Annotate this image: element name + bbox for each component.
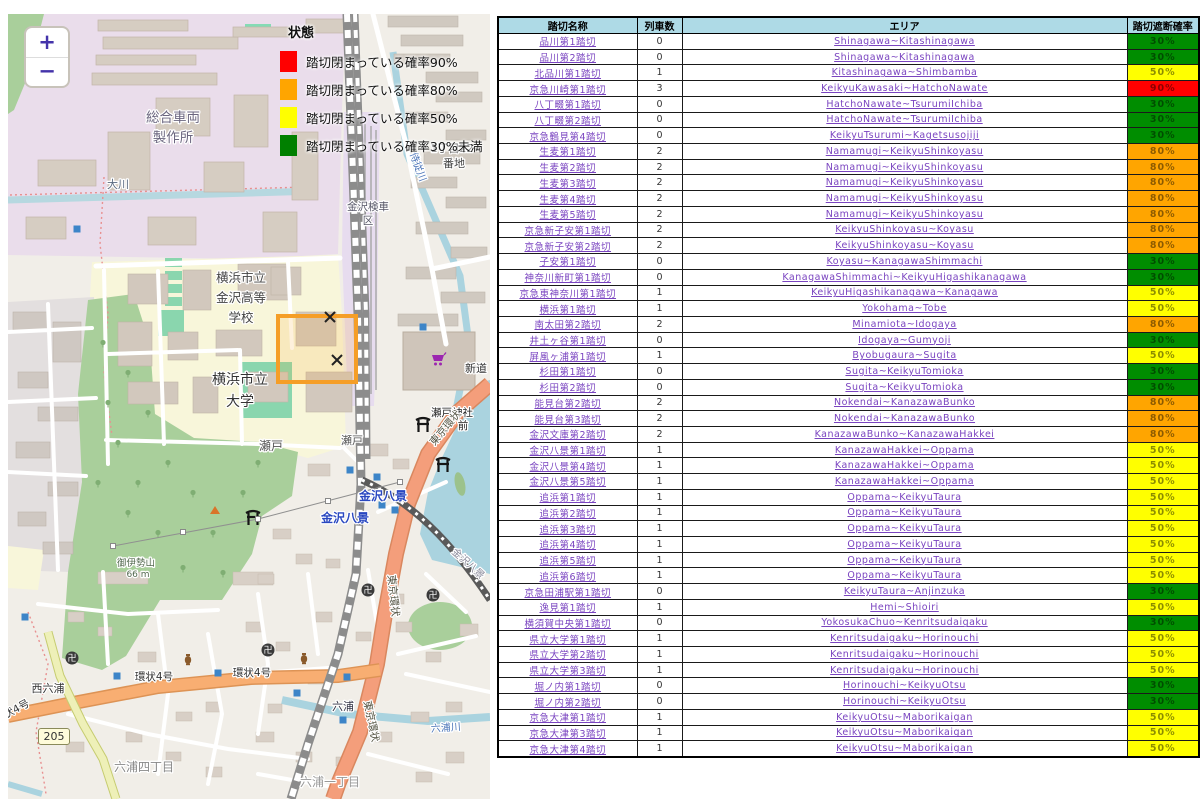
train-count-cell: 2: [637, 206, 682, 222]
table-row: 京急大津第4踏切1KeikyuOtsu~Maborikaigan50%: [498, 741, 1199, 757]
table-header-row: 踏切名称 列車数 エリア 踏切遮断確率: [498, 17, 1199, 34]
probability-cell: 80%: [1127, 426, 1199, 442]
area-link[interactable]: HatchoNawate~TsurumiIchiba: [826, 99, 982, 110]
node-icon: [256, 517, 261, 522]
probability-cell: 80%: [1127, 316, 1199, 332]
area-link[interactable]: Namamugi~KeikyuShinkoyasu: [826, 146, 984, 157]
table-row: 堀ノ内第2踏切0Horinouchi~KeikyuOtsu30%: [498, 694, 1199, 710]
area-cell: KanazawaHakkei~Oppama: [682, 442, 1127, 458]
table-row: 品川第1踏切0Shinagawa~Kitashinagawa30%: [498, 34, 1199, 50]
map-label: 番地: [443, 157, 465, 170]
area-cell: KanazawaBunko~KanazawaHakkei: [682, 426, 1127, 442]
train-count-cell: 0: [637, 584, 682, 600]
node-icon: [111, 544, 116, 549]
area-link[interactable]: KeikyuOtsu~Maborikaigan: [836, 743, 973, 754]
table-row: 堀ノ内第1踏切0Horinouchi~KeikyuOtsu30%: [498, 678, 1199, 694]
area-link[interactable]: Oppama~KeikyuTaura: [847, 555, 961, 566]
map[interactable]: 卍: [8, 14, 490, 799]
area-link[interactable]: KeikyuKawasaki~HatchoNawate: [821, 83, 988, 94]
zoom-out-button[interactable]: −: [26, 58, 68, 87]
crossing-name-cell: 生麦第1踏切: [498, 144, 637, 160]
train-count-cell: 0: [637, 615, 682, 631]
crossing-name-cell: 県立大学第2踏切: [498, 647, 637, 663]
area-cell: Oppama~KeikyuTaura: [682, 568, 1127, 584]
area-link[interactable]: Namamugi~KeikyuShinkoyasu: [826, 193, 984, 204]
road-ref-badge: 205: [38, 728, 70, 745]
train-count-cell: 1: [637, 285, 682, 301]
table-row: 逸見第1踏切1Hemi~Shioiri50%: [498, 599, 1199, 615]
probability-cell: 30%: [1127, 379, 1199, 395]
crossing-name-cell: 品川第2踏切: [498, 49, 637, 65]
probability-cell: 80%: [1127, 222, 1199, 238]
area-link[interactable]: Kenritsudaigaku~Horinouchi: [830, 649, 979, 660]
crossing-name-link[interactable]: 逸見第1踏切: [539, 603, 596, 614]
map-label: 金沢検車: [347, 200, 389, 213]
probability-cell: 50%: [1127, 285, 1199, 301]
area-cell: Idogaya~Gumyoji: [682, 332, 1127, 348]
probability-cell: 30%: [1127, 364, 1199, 380]
area-cell: KeikyuTsurumi~Kagetsusojiji: [682, 128, 1127, 144]
crossing-name-link[interactable]: 能見台第2踏切: [534, 399, 601, 410]
table-row: 京急新子安第1踏切2KeikyuShinkoyasu~Koyasu80%: [498, 222, 1199, 238]
table-row: 県立大学第3踏切1Kenritsudaigaku~Horinouchi50%: [498, 662, 1199, 678]
node-icon: [398, 480, 403, 485]
crossing-table-panel: 踏切名称 列車数 エリア 踏切遮断確率 品川第1踏切0Shinagawa~Kit…: [497, 16, 1198, 758]
train-count-cell: 0: [637, 379, 682, 395]
table-row: 杉田第1踏切0Sugita~KeikyuTomioka30%: [498, 364, 1199, 380]
train-count-cell: 1: [637, 301, 682, 317]
area-link[interactable]: KeikyuHigashikanagawa~Kanagawa: [811, 287, 998, 298]
crossing-name-cell: 子安第1踏切: [498, 254, 637, 270]
area-link[interactable]: KeikyuTaura~Anjinzuka: [844, 586, 965, 597]
area-link[interactable]: Shinagawa~Kitashinagawa: [834, 36, 975, 47]
crossing-name-cell: 横浜第1踏切: [498, 301, 637, 317]
probability-cell: 30%: [1127, 34, 1199, 50]
train-count-cell: 2: [637, 395, 682, 411]
map-label: 横浜市立: [216, 270, 266, 285]
crossing-name-link[interactable]: 金沢八景第1踏切: [529, 446, 606, 457]
temple-icon: [427, 589, 440, 602]
header-train-count: 列車数: [637, 17, 682, 34]
table-row: 品川第2踏切0Shinagawa~Kitashinagawa30%: [498, 49, 1199, 65]
area-cell: Byobugaura~Sugita: [682, 348, 1127, 364]
map-label: 環状4号: [135, 670, 173, 683]
map-label: 区: [363, 215, 374, 227]
crossing-name-link[interactable]: 追浜第6踏切: [539, 572, 596, 583]
map-label: 六浦一丁目: [300, 775, 360, 789]
crossing-name-cell: 京急新子安第2踏切: [498, 238, 637, 254]
crossing-name-link[interactable]: 南太田第2踏切: [534, 320, 601, 331]
area-link[interactable]: Nokendai~KanazawaBunko: [834, 397, 975, 408]
probability-cell: 50%: [1127, 568, 1199, 584]
area-link[interactable]: Yokohama~Tobe: [862, 303, 947, 314]
crossing-name-link[interactable]: 京急鶴見第4踏切: [529, 132, 606, 143]
train-count-cell: 1: [637, 647, 682, 663]
area-link[interactable]: Hemi~Shioiri: [870, 602, 939, 613]
crossing-name-link[interactable]: 生麦第3踏切: [539, 179, 596, 190]
probability-cell: 50%: [1127, 709, 1199, 725]
area-cell: Minamiota~Idogaya: [682, 316, 1127, 332]
train-count-cell: 2: [637, 144, 682, 160]
bluesq-icon: [22, 614, 29, 621]
train-count-cell: 2: [637, 238, 682, 254]
probability-cell: 30%: [1127, 254, 1199, 270]
map-label: 西六浦: [32, 682, 65, 695]
probability-cell: 80%: [1127, 191, 1199, 207]
area-cell: Oppama~KeikyuTaura: [682, 505, 1127, 521]
train-count-cell: 1: [637, 599, 682, 615]
map-label: 六浦: [332, 700, 354, 713]
area-link[interactable]: Nokendai~KanazawaBunko: [834, 413, 975, 424]
train-count-cell: 2: [637, 175, 682, 191]
probability-cell: 30%: [1127, 96, 1199, 112]
probability-cell: 30%: [1127, 128, 1199, 144]
map-label: 新道: [465, 361, 487, 375]
crossing-name-link[interactable]: 生麦第5踏切: [539, 210, 596, 221]
area-cell: KanazawaHakkei~Oppama: [682, 458, 1127, 474]
crossing-name-cell: 金沢八景第5踏切: [498, 474, 637, 490]
probability-cell: 80%: [1127, 159, 1199, 175]
area-link[interactable]: Sugita~KeikyuTomioka: [845, 366, 963, 377]
train-count-cell: 3: [637, 81, 682, 97]
crossing-name-link[interactable]: 能見台第3踏切: [534, 415, 601, 426]
train-count-cell: 0: [637, 269, 682, 285]
zoom-control: + −: [24, 26, 70, 88]
area-cell: Namamugi~KeikyuShinkoyasu: [682, 206, 1127, 222]
crossing-name-link[interactable]: 品川第2踏切: [539, 53, 596, 64]
crossing-name-link[interactable]: 京急東神奈川第1踏切: [519, 289, 616, 300]
area-link[interactable]: YokosukaChuo~Kenritsudaigaku: [821, 617, 987, 628]
table-row: 金沢八景第4踏切1KanazawaHakkei~Oppama50%: [498, 458, 1199, 474]
table-row: 八丁畷第2踏切0HatchoNawate~TsurumiIchiba30%: [498, 112, 1199, 128]
train-count-cell: 1: [637, 725, 682, 741]
table-row: 生麦第5踏切2Namamugi~KeikyuShinkoyasu80%: [498, 206, 1199, 222]
crossing-name-link[interactable]: 井土ヶ谷第1踏切: [529, 336, 606, 347]
crossing-table-body: 品川第1踏切0Shinagawa~Kitashinagawa30%品川第2踏切0…: [498, 34, 1199, 758]
zoom-in-button[interactable]: +: [26, 28, 68, 57]
probability-cell: 50%: [1127, 552, 1199, 568]
map-label: 1丁目22: [431, 142, 474, 155]
crossing-name-link[interactable]: 生麦第4踏切: [539, 195, 596, 206]
area-cell: Horinouchi~KeikyuOtsu: [682, 678, 1127, 694]
table-row: 京急田浦駅第1踏切0KeikyuTaura~Anjinzuka30%: [498, 584, 1199, 600]
crossing-name-link[interactable]: 京急大津第3踏切: [529, 729, 606, 740]
temple-icon: [362, 584, 375, 597]
crossing-name-link[interactable]: 金沢八景第4踏切: [529, 462, 606, 473]
table-row: 追浜第6踏切1Oppama~KeikyuTaura50%: [498, 568, 1199, 584]
area-link[interactable]: Oppama~KeikyuTaura: [847, 539, 961, 550]
area-link[interactable]: KanazawaHakkei~Oppama: [835, 476, 974, 487]
area-link[interactable]: Kenritsudaigaku~Horinouchi: [830, 665, 979, 676]
train-count-cell: 1: [637, 662, 682, 678]
crossing-name-link[interactable]: 杉田第1踏切: [539, 367, 596, 378]
bluesq-icon: [420, 324, 427, 331]
crossing-name-cell: 横須賀中央第1踏切: [498, 615, 637, 631]
table-row: 能見台第2踏切2Nokendai~KanazawaBunko80%: [498, 395, 1199, 411]
node-icon: [326, 499, 331, 504]
crossing-name-cell: 金沢文庫第2踏切: [498, 426, 637, 442]
train-count-cell: 0: [637, 112, 682, 128]
area-cell: Sugita~KeikyuTomioka: [682, 379, 1127, 395]
area-link[interactable]: Shinagawa~Kitashinagawa: [834, 52, 975, 63]
area-link[interactable]: KeikyuOtsu~Maborikaigan: [836, 712, 973, 723]
crossing-name-link[interactable]: 京急大津第1踏切: [529, 713, 606, 724]
train-count-cell: 1: [637, 348, 682, 364]
probability-cell: 50%: [1127, 442, 1199, 458]
area-cell: Kenritsudaigaku~Horinouchi: [682, 662, 1127, 678]
area-cell: Yokohama~Tobe: [682, 301, 1127, 317]
crossing-name-cell: 京急川崎第1踏切: [498, 81, 637, 97]
train-count-cell: 2: [637, 411, 682, 427]
area-cell: Oppama~KeikyuTaura: [682, 521, 1127, 537]
crossing-name-cell: 八丁畷第2踏切: [498, 112, 637, 128]
area-link[interactable]: KeikyuShinkoyasu~Koyasu: [835, 224, 974, 235]
train-count-cell: 1: [637, 741, 682, 757]
train-count-cell: 1: [637, 568, 682, 584]
table-row: 生麦第3踏切2Namamugi~KeikyuShinkoyasu80%: [498, 175, 1199, 191]
bluesq-icon: [374, 474, 381, 481]
crossing-name-link[interactable]: 横須賀中央第1踏切: [524, 619, 611, 630]
temple-icon: [66, 652, 79, 665]
area-cell: Shinagawa~Kitashinagawa: [682, 34, 1127, 50]
area-link[interactable]: Horinouchi~KeikyuOtsu: [843, 680, 966, 691]
area-cell: Sugita~KeikyuTomioka: [682, 364, 1127, 380]
probability-cell: 30%: [1127, 269, 1199, 285]
crossing-name-cell: 追浜第6踏切: [498, 568, 637, 584]
area-cell: HatchoNawate~TsurumiIchiba: [682, 96, 1127, 112]
area-link[interactable]: HatchoNawate~TsurumiIchiba: [826, 114, 982, 125]
map-canvas: 卍: [8, 14, 490, 799]
school-area: [8, 546, 44, 590]
crossing-name-cell: 杉田第1踏切: [498, 364, 637, 380]
crossing-name-cell: 生麦第5踏切: [498, 206, 637, 222]
area-cell: Oppama~KeikyuTaura: [682, 537, 1127, 553]
map-label: 金沢八景: [358, 488, 407, 503]
crossing-name-cell: 金沢八景第1踏切: [498, 442, 637, 458]
map-label: 66 m: [126, 570, 149, 580]
area-link[interactable]: Minamiota~Idogaya: [852, 319, 956, 330]
probability-cell: 50%: [1127, 662, 1199, 678]
table-row: 北品川第1踏切1Kitashinagawa~Shimbamba50%: [498, 65, 1199, 81]
crossing-name-link[interactable]: 横浜第1踏切: [539, 305, 596, 316]
area-cell: Namamugi~KeikyuShinkoyasu: [682, 175, 1127, 191]
train-count-cell: 1: [637, 474, 682, 490]
area-link[interactable]: KanazawaBunko~KanazawaHakkei: [815, 429, 995, 440]
crossing-name-link[interactable]: 神奈川新町第1踏切: [524, 273, 611, 284]
area-link[interactable]: Idogaya~Gumyoji: [858, 335, 951, 346]
crossing-name-link[interactable]: 生麦第1踏切: [539, 147, 596, 158]
area-cell: Oppama~KeikyuTaura: [682, 552, 1127, 568]
table-row: 金沢八景第1踏切1KanazawaHakkei~Oppama50%: [498, 442, 1199, 458]
area-link[interactable]: KeikyuShinkoyasu~Koyasu: [835, 240, 974, 251]
table-row: 京急大津第3踏切1KeikyuOtsu~Maborikaigan50%: [498, 725, 1199, 741]
crossing-name-cell: 八丁畷第1踏切: [498, 96, 637, 112]
bluesq-icon: [294, 690, 301, 697]
bluesq-icon: [114, 673, 121, 680]
crossing-name-link[interactable]: 追浜第4踏切: [539, 540, 596, 551]
crossing-name-link[interactable]: 追浜第2踏切: [539, 509, 596, 520]
crossing-name-link[interactable]: 追浜第1踏切: [539, 493, 596, 504]
bluesq-icon: [347, 467, 354, 474]
map-label: 瀬戸: [341, 433, 363, 447]
area-cell: KeikyuShinkoyasu~Koyasu: [682, 238, 1127, 254]
crossing-name-cell: 京急大津第1踏切: [498, 709, 637, 725]
crossing-name-link[interactable]: 県立大学第3踏切: [529, 666, 606, 677]
crossing-name-link[interactable]: 生麦第2踏切: [539, 163, 596, 174]
crossing-name-cell: 品川第1踏切: [498, 34, 637, 50]
table-row: 八丁畷第1踏切0HatchoNawate~TsurumiIchiba30%: [498, 96, 1199, 112]
table-row: 金沢八景第5踏切1KanazawaHakkei~Oppama50%: [498, 474, 1199, 490]
crossing-name-cell: 追浜第3踏切: [498, 521, 637, 537]
crossing-name-link[interactable]: 八丁畷第1踏切: [534, 100, 601, 111]
probability-cell: 50%: [1127, 505, 1199, 521]
train-count-cell: 0: [637, 128, 682, 144]
area-cell: KeikyuShinkoyasu~Koyasu: [682, 222, 1127, 238]
train-count-cell: 0: [637, 49, 682, 65]
area-cell: KeikyuOtsu~Maborikaigan: [682, 709, 1127, 725]
table-row: 追浜第3踏切1Oppama~KeikyuTaura50%: [498, 521, 1199, 537]
crossing-name-cell: 堀ノ内第2踏切: [498, 694, 637, 710]
crossing-name-cell: 追浜第2踏切: [498, 505, 637, 521]
crossing-name-link[interactable]: 京急大津第4踏切: [529, 745, 606, 756]
probability-cell: 50%: [1127, 458, 1199, 474]
crossing-name-link[interactable]: 京急田浦駅第1踏切: [524, 588, 611, 599]
area-link[interactable]: KanazawaHakkei~Oppama: [835, 460, 974, 471]
area-cell: Nokendai~KanazawaBunko: [682, 411, 1127, 427]
probability-cell: 80%: [1127, 395, 1199, 411]
area-cell: Oppama~KeikyuTaura: [682, 489, 1127, 505]
probability-cell: 80%: [1127, 144, 1199, 160]
table-row: 金沢文庫第2踏切2KanazawaBunko~KanazawaHakkei80%: [498, 426, 1199, 442]
map-label: 六浦四丁目: [114, 760, 174, 774]
probability-cell: 50%: [1127, 647, 1199, 663]
crossing-name-link[interactable]: 北品川第1踏切: [534, 69, 601, 80]
crossing-name-cell: 堀ノ内第1踏切: [498, 678, 637, 694]
probability-cell: 80%: [1127, 238, 1199, 254]
bluesq-icon: [74, 226, 81, 233]
crossing-name-cell: 京急新子安第1踏切: [498, 222, 637, 238]
train-count-cell: 0: [637, 678, 682, 694]
area-cell: KanazawaHakkei~Oppama: [682, 474, 1127, 490]
crossing-name-cell: 県立大学第1踏切: [498, 631, 637, 647]
crossing-name-cell: 京急東神奈川第1踏切: [498, 285, 637, 301]
crossing-name-link[interactable]: 京急新子安第2踏切: [524, 242, 611, 253]
table-row: 屏風ヶ浦第1踏切1Byobugaura~Sugita50%: [498, 348, 1199, 364]
crossing-name-link[interactable]: 品川第1踏切: [539, 37, 596, 48]
crossing-name-cell: 金沢八景第4踏切: [498, 458, 637, 474]
area-cell: KeikyuHigashikanagawa~Kanagawa: [682, 285, 1127, 301]
crossing-name-link[interactable]: 追浜第5踏切: [539, 556, 596, 567]
probability-cell: 30%: [1127, 332, 1199, 348]
area-link[interactable]: Oppama~KeikyuTaura: [847, 570, 961, 581]
header-area: エリア: [682, 17, 1127, 34]
area-link[interactable]: Namamugi~KeikyuShinkoyasu: [826, 177, 984, 188]
crossing-name-link[interactable]: 金沢八景第5踏切: [529, 477, 606, 488]
area-cell: Horinouchi~KeikyuOtsu: [682, 694, 1127, 710]
train-count-cell: 1: [637, 537, 682, 553]
crossing-name-cell: 能見台第3踏切: [498, 411, 637, 427]
crossing-name-link[interactable]: 子安第1踏切: [539, 257, 596, 268]
table-row: 県立大学第1踏切1Kenritsudaigaku~Horinouchi50%: [498, 631, 1199, 647]
node-icon: [181, 530, 186, 535]
area-cell: Shinagawa~Kitashinagawa: [682, 49, 1127, 65]
area-link[interactable]: Kitashinagawa~Shimbamba: [832, 67, 978, 78]
area-link[interactable]: KeikyuTsurumi~Kagetsusojiji: [830, 130, 979, 141]
area-link[interactable]: KanazawaHakkei~Oppama: [835, 445, 974, 456]
crossing-name-link[interactable]: 県立大学第1踏切: [529, 635, 606, 646]
area-link[interactable]: Koyasu~KanagawaShimmachi: [826, 256, 982, 267]
area-cell: KeikyuOtsu~Maborikaigan: [682, 741, 1127, 757]
probability-cell: 50%: [1127, 631, 1199, 647]
area-cell: HatchoNawate~TsurumiIchiba: [682, 112, 1127, 128]
map-label: 御伊勢山: [117, 557, 155, 569]
crossing-name-cell: 追浜第4踏切: [498, 537, 637, 553]
probability-cell: 50%: [1127, 599, 1199, 615]
crossing-name-cell: 生麦第2踏切: [498, 159, 637, 175]
area-link[interactable]: Namamugi~KeikyuShinkoyasu: [826, 162, 984, 173]
train-count-cell: 1: [637, 521, 682, 537]
crossing-name-link[interactable]: 京急新子安第1踏切: [524, 226, 611, 237]
map-label: 学校: [228, 310, 254, 325]
table-row: 能見台第3踏切2Nokendai~KanazawaBunko80%: [498, 411, 1199, 427]
area-link[interactable]: Horinouchi~KeikyuOtsu: [843, 696, 966, 707]
crossing-name-cell: 京急田浦駅第1踏切: [498, 584, 637, 600]
train-count-cell: 2: [637, 426, 682, 442]
train-count-cell: 1: [637, 552, 682, 568]
crossing-name-link[interactable]: 京急川崎第1踏切: [529, 85, 606, 96]
area-link[interactable]: Namamugi~KeikyuShinkoyasu: [826, 209, 984, 220]
area-cell: Kitashinagawa~Shimbamba: [682, 65, 1127, 81]
train-count-cell: 2: [637, 222, 682, 238]
probability-cell: 80%: [1127, 411, 1199, 427]
area-link[interactable]: Oppama~KeikyuTaura: [847, 507, 961, 518]
table-row: 神奈川新町第1踏切0KanagawaShimmachi~KeikyuHigash…: [498, 269, 1199, 285]
probability-cell: 50%: [1127, 348, 1199, 364]
crossing-name-link[interactable]: 杉田第2踏切: [539, 383, 596, 394]
table-row: 京急東神奈川第1踏切1KeikyuHigashikanagawa~Kanagaw…: [498, 285, 1199, 301]
table-row: 子安第1踏切0Koyasu~KanagawaShimmachi30%: [498, 254, 1199, 270]
probability-cell: 50%: [1127, 741, 1199, 757]
train-count-cell: 2: [637, 316, 682, 332]
area-link[interactable]: Oppama~KeikyuTaura: [847, 492, 961, 503]
area-link[interactable]: Sugita~KeikyuTomioka: [845, 382, 963, 393]
crossing-name-link[interactable]: 堀ノ内第1踏切: [534, 682, 601, 693]
probability-cell: 80%: [1127, 206, 1199, 222]
area-cell: Kenritsudaigaku~Horinouchi: [682, 647, 1127, 663]
area-cell: Nokendai~KanazawaBunko: [682, 395, 1127, 411]
crossing-name-cell: 京急大津第4踏切: [498, 741, 637, 757]
bluesq-icon: [340, 717, 347, 724]
train-count-cell: 0: [637, 694, 682, 710]
probability-cell: 50%: [1127, 65, 1199, 81]
crossing-name-cell: 神奈川新町第1踏切: [498, 269, 637, 285]
area-link[interactable]: KanagawaShimmachi~KeikyuHigashikanagawa: [782, 272, 1026, 283]
map-label: 瀬戸: [259, 439, 283, 453]
probability-cell: 80%: [1127, 175, 1199, 191]
train-count-cell: 1: [637, 709, 682, 725]
crossing-name-link[interactable]: 堀ノ内第2踏切: [534, 698, 601, 709]
area-link[interactable]: Oppama~KeikyuTaura: [847, 523, 961, 534]
area-link[interactable]: Byobugaura~Sugita: [852, 350, 956, 361]
crossing-name-link[interactable]: 屏風ヶ浦第1踏切: [529, 352, 606, 363]
probability-cell: 50%: [1127, 537, 1199, 553]
area-link[interactable]: Kenritsudaigaku~Horinouchi: [830, 633, 979, 644]
crossing-name-link[interactable]: 金沢文庫第2踏切: [529, 430, 606, 441]
area-link[interactable]: KeikyuOtsu~Maborikaigan: [836, 727, 973, 738]
crossing-name-link[interactable]: 追浜第3踏切: [539, 525, 596, 536]
crossing-name-link[interactable]: 八丁畷第2踏切: [534, 116, 601, 127]
crossing-name-link[interactable]: 県立大学第2踏切: [529, 650, 606, 661]
